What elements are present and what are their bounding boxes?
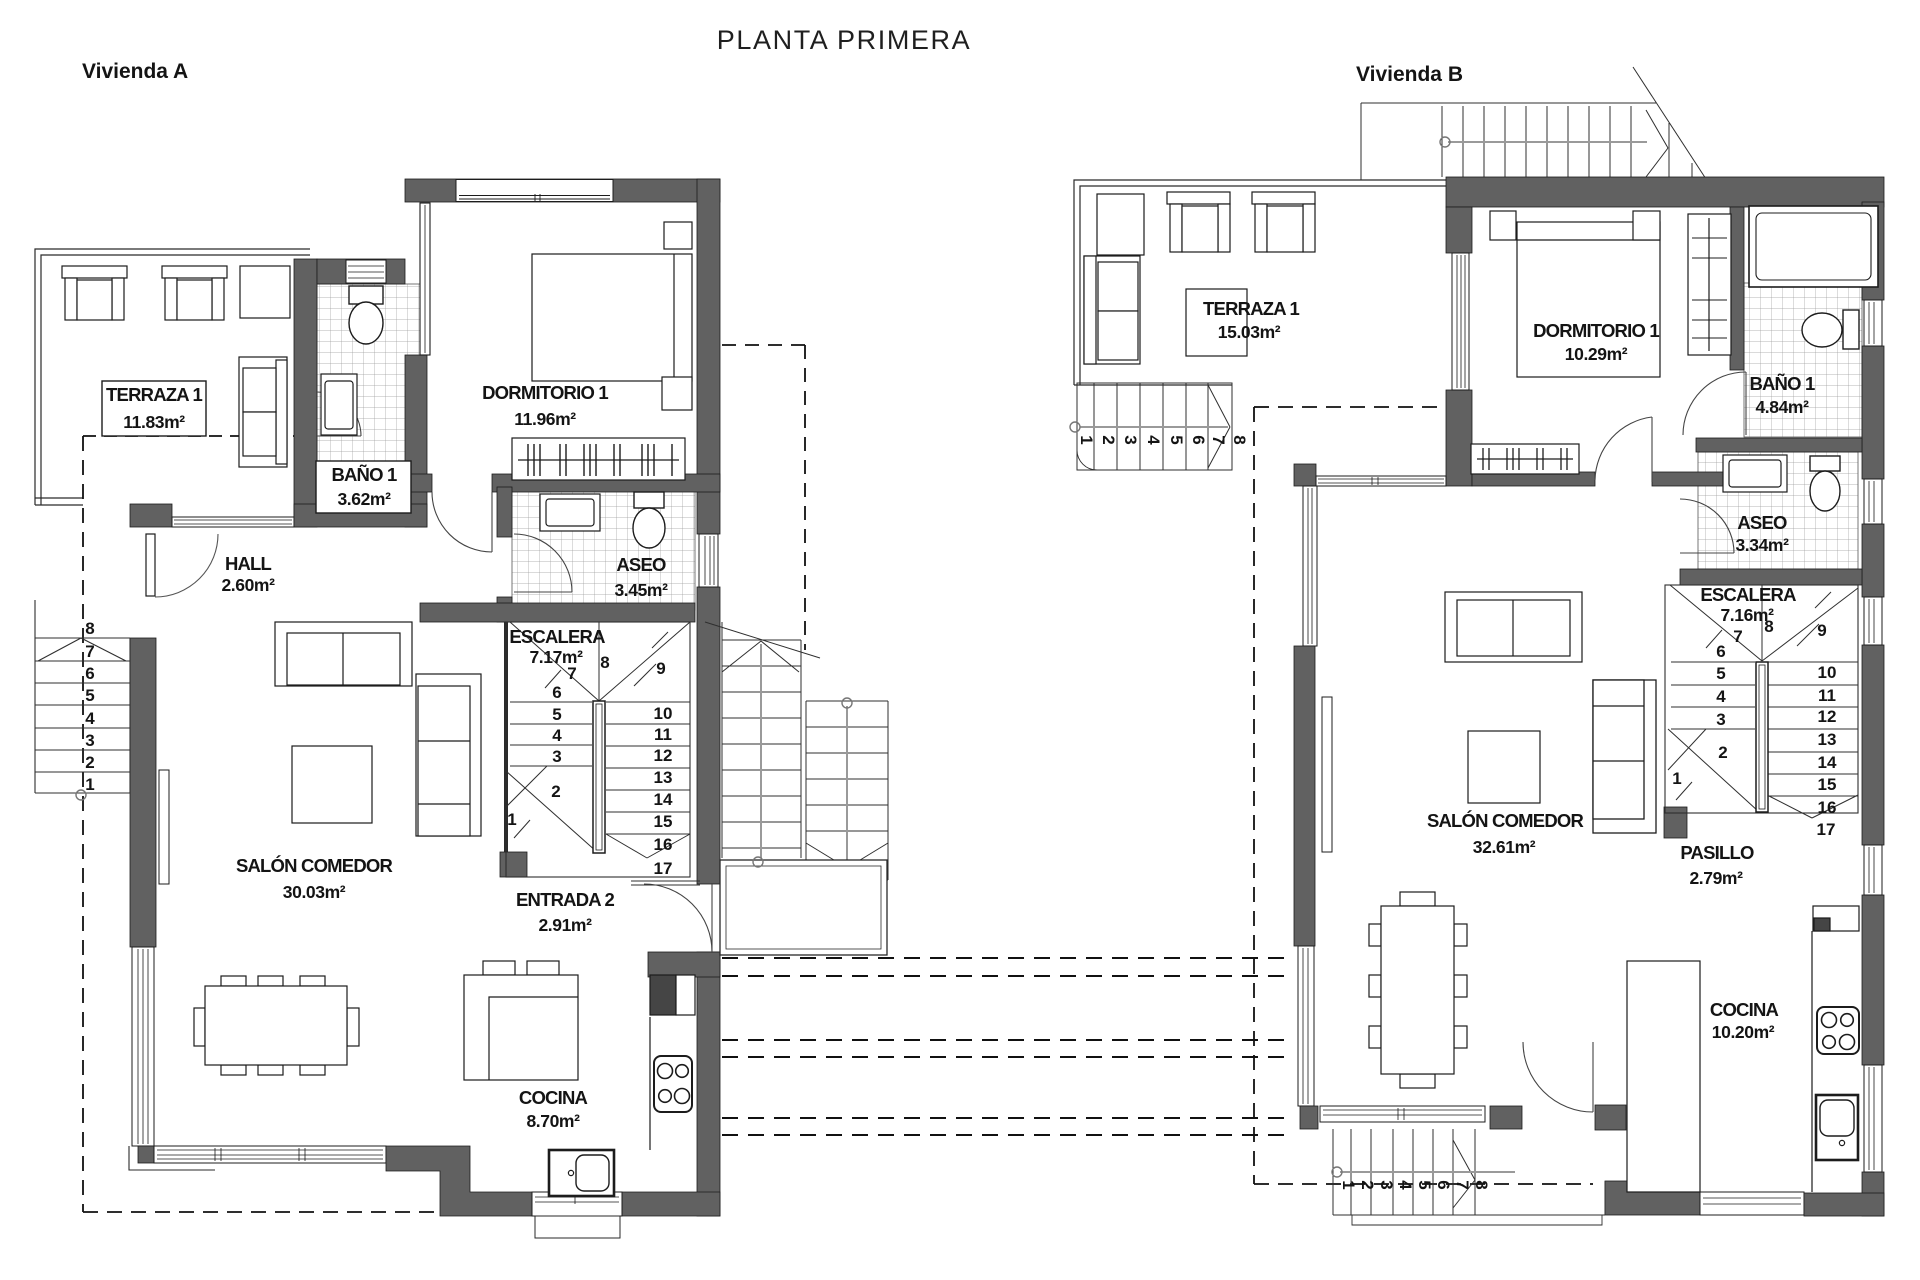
svg-text:SALÓN COMEDOR: SALÓN COMEDOR xyxy=(236,855,393,876)
svg-text:17: 17 xyxy=(654,859,673,878)
svg-text:10.29m²: 10.29m² xyxy=(1565,344,1628,364)
svg-text:2.91m²: 2.91m² xyxy=(538,915,592,935)
svg-text:6: 6 xyxy=(1716,642,1725,661)
svg-text:3.34m²: 3.34m² xyxy=(1735,535,1789,555)
svg-text:13: 13 xyxy=(1818,730,1837,749)
svg-text:6: 6 xyxy=(85,664,94,683)
svg-text:8.70m²: 8.70m² xyxy=(526,1111,580,1131)
svg-text:COCINA: COCINA xyxy=(1710,999,1779,1020)
svg-text:2: 2 xyxy=(551,782,560,801)
svg-text:DORMITORIO 1: DORMITORIO 1 xyxy=(1533,320,1659,341)
svg-text:ESCALERA: ESCALERA xyxy=(509,626,605,647)
svg-text:32.61m²: 32.61m² xyxy=(1473,837,1536,857)
svg-text:3: 3 xyxy=(85,731,94,750)
svg-text:6: 6 xyxy=(552,683,561,702)
svg-text:11.96m²: 11.96m² xyxy=(514,409,576,429)
svg-text:15: 15 xyxy=(654,812,673,831)
svg-text:DORMITORIO 1: DORMITORIO 1 xyxy=(482,382,608,403)
svg-text:2: 2 xyxy=(1718,743,1727,762)
svg-text:1: 1 xyxy=(507,810,516,829)
svg-text:15: 15 xyxy=(1818,775,1837,794)
svg-text:14: 14 xyxy=(1818,753,1837,772)
svg-text:14: 14 xyxy=(654,790,673,809)
svg-text:16: 16 xyxy=(1818,798,1837,817)
svg-text:6: 6 xyxy=(1434,1180,1453,1189)
svg-text:1: 1 xyxy=(1339,1180,1358,1189)
svg-text:12: 12 xyxy=(654,746,673,765)
svg-text:4: 4 xyxy=(1396,1180,1415,1190)
svg-text:4: 4 xyxy=(1144,435,1163,445)
svg-text:3: 3 xyxy=(1377,1180,1396,1189)
svg-text:16: 16 xyxy=(654,835,673,854)
svg-text:PASILLO: PASILLO xyxy=(1680,842,1754,863)
svg-text:7: 7 xyxy=(1733,627,1742,646)
svg-text:3.45m²: 3.45m² xyxy=(614,580,668,600)
svg-text:30.03m²: 30.03m² xyxy=(283,882,346,902)
svg-text:2: 2 xyxy=(1358,1180,1377,1189)
svg-text:10.20m²: 10.20m² xyxy=(1712,1022,1775,1042)
svg-text:ASEO: ASEO xyxy=(616,554,666,575)
svg-text:BAÑO 1: BAÑO 1 xyxy=(1749,373,1815,394)
svg-text:17: 17 xyxy=(1817,820,1836,839)
svg-text:7.16m²: 7.16m² xyxy=(1720,605,1774,625)
svg-text:1: 1 xyxy=(1077,435,1096,444)
svg-text:8: 8 xyxy=(85,619,94,638)
svg-text:SALÓN COMEDOR: SALÓN COMEDOR xyxy=(1427,810,1584,831)
svg-text:8: 8 xyxy=(1230,435,1249,444)
svg-text:4: 4 xyxy=(85,709,95,728)
svg-text:5: 5 xyxy=(85,686,94,705)
svg-text:ASEO: ASEO xyxy=(1737,512,1787,533)
svg-text:7.17m²: 7.17m² xyxy=(529,647,583,667)
svg-text:HALL: HALL xyxy=(225,553,272,574)
svg-text:8: 8 xyxy=(600,653,609,672)
svg-text:3.62m²: 3.62m² xyxy=(337,489,391,509)
svg-text:2: 2 xyxy=(85,753,94,772)
svg-text:10: 10 xyxy=(654,704,673,723)
svg-text:5: 5 xyxy=(1716,664,1725,683)
svg-text:Vivienda A: Vivienda A xyxy=(82,60,188,83)
svg-text:3: 3 xyxy=(1121,435,1140,444)
svg-text:2.60m²: 2.60m² xyxy=(221,575,275,595)
svg-text:10: 10 xyxy=(1818,663,1837,682)
svg-text:4: 4 xyxy=(552,726,562,745)
svg-text:9: 9 xyxy=(656,659,665,678)
svg-text:COCINA: COCINA xyxy=(519,1087,588,1108)
svg-text:15.03m²: 15.03m² xyxy=(1218,322,1281,342)
svg-text:12: 12 xyxy=(1818,707,1837,726)
svg-text:8: 8 xyxy=(1472,1180,1491,1189)
svg-text:7: 7 xyxy=(1209,435,1228,444)
svg-text:5: 5 xyxy=(1415,1180,1434,1189)
svg-text:BAÑO 1: BAÑO 1 xyxy=(331,464,397,485)
svg-text:6: 6 xyxy=(1189,435,1208,444)
svg-text:2: 2 xyxy=(1099,435,1118,444)
svg-text:TERRAZA 1: TERRAZA 1 xyxy=(106,384,202,405)
svg-text:1: 1 xyxy=(1672,769,1681,788)
svg-text:11: 11 xyxy=(1818,686,1836,705)
svg-text:3: 3 xyxy=(552,747,561,766)
svg-text:7: 7 xyxy=(1453,1180,1472,1189)
svg-text:13: 13 xyxy=(654,768,673,787)
svg-text:Vivienda B: Vivienda B xyxy=(1356,63,1463,86)
svg-text:5: 5 xyxy=(1167,435,1186,444)
svg-text:ENTRADA 2: ENTRADA 2 xyxy=(516,889,614,910)
svg-text:11.83m²: 11.83m² xyxy=(123,412,185,432)
svg-text:4: 4 xyxy=(1716,687,1726,706)
svg-text:9: 9 xyxy=(1817,621,1826,640)
svg-text:TERRAZA 1: TERRAZA 1 xyxy=(1203,298,1299,319)
svg-text:4.84m²: 4.84m² xyxy=(1755,397,1809,417)
svg-text:11: 11 xyxy=(654,725,672,744)
svg-text:ESCALERA: ESCALERA xyxy=(1700,584,1796,605)
svg-text:7: 7 xyxy=(85,642,94,661)
svg-text:1: 1 xyxy=(85,775,94,794)
svg-text:5: 5 xyxy=(552,705,561,724)
svg-text:2.79m²: 2.79m² xyxy=(1689,868,1743,888)
svg-text:PLANTA PRIMERA: PLANTA PRIMERA xyxy=(717,25,971,55)
svg-text:3: 3 xyxy=(1716,710,1725,729)
